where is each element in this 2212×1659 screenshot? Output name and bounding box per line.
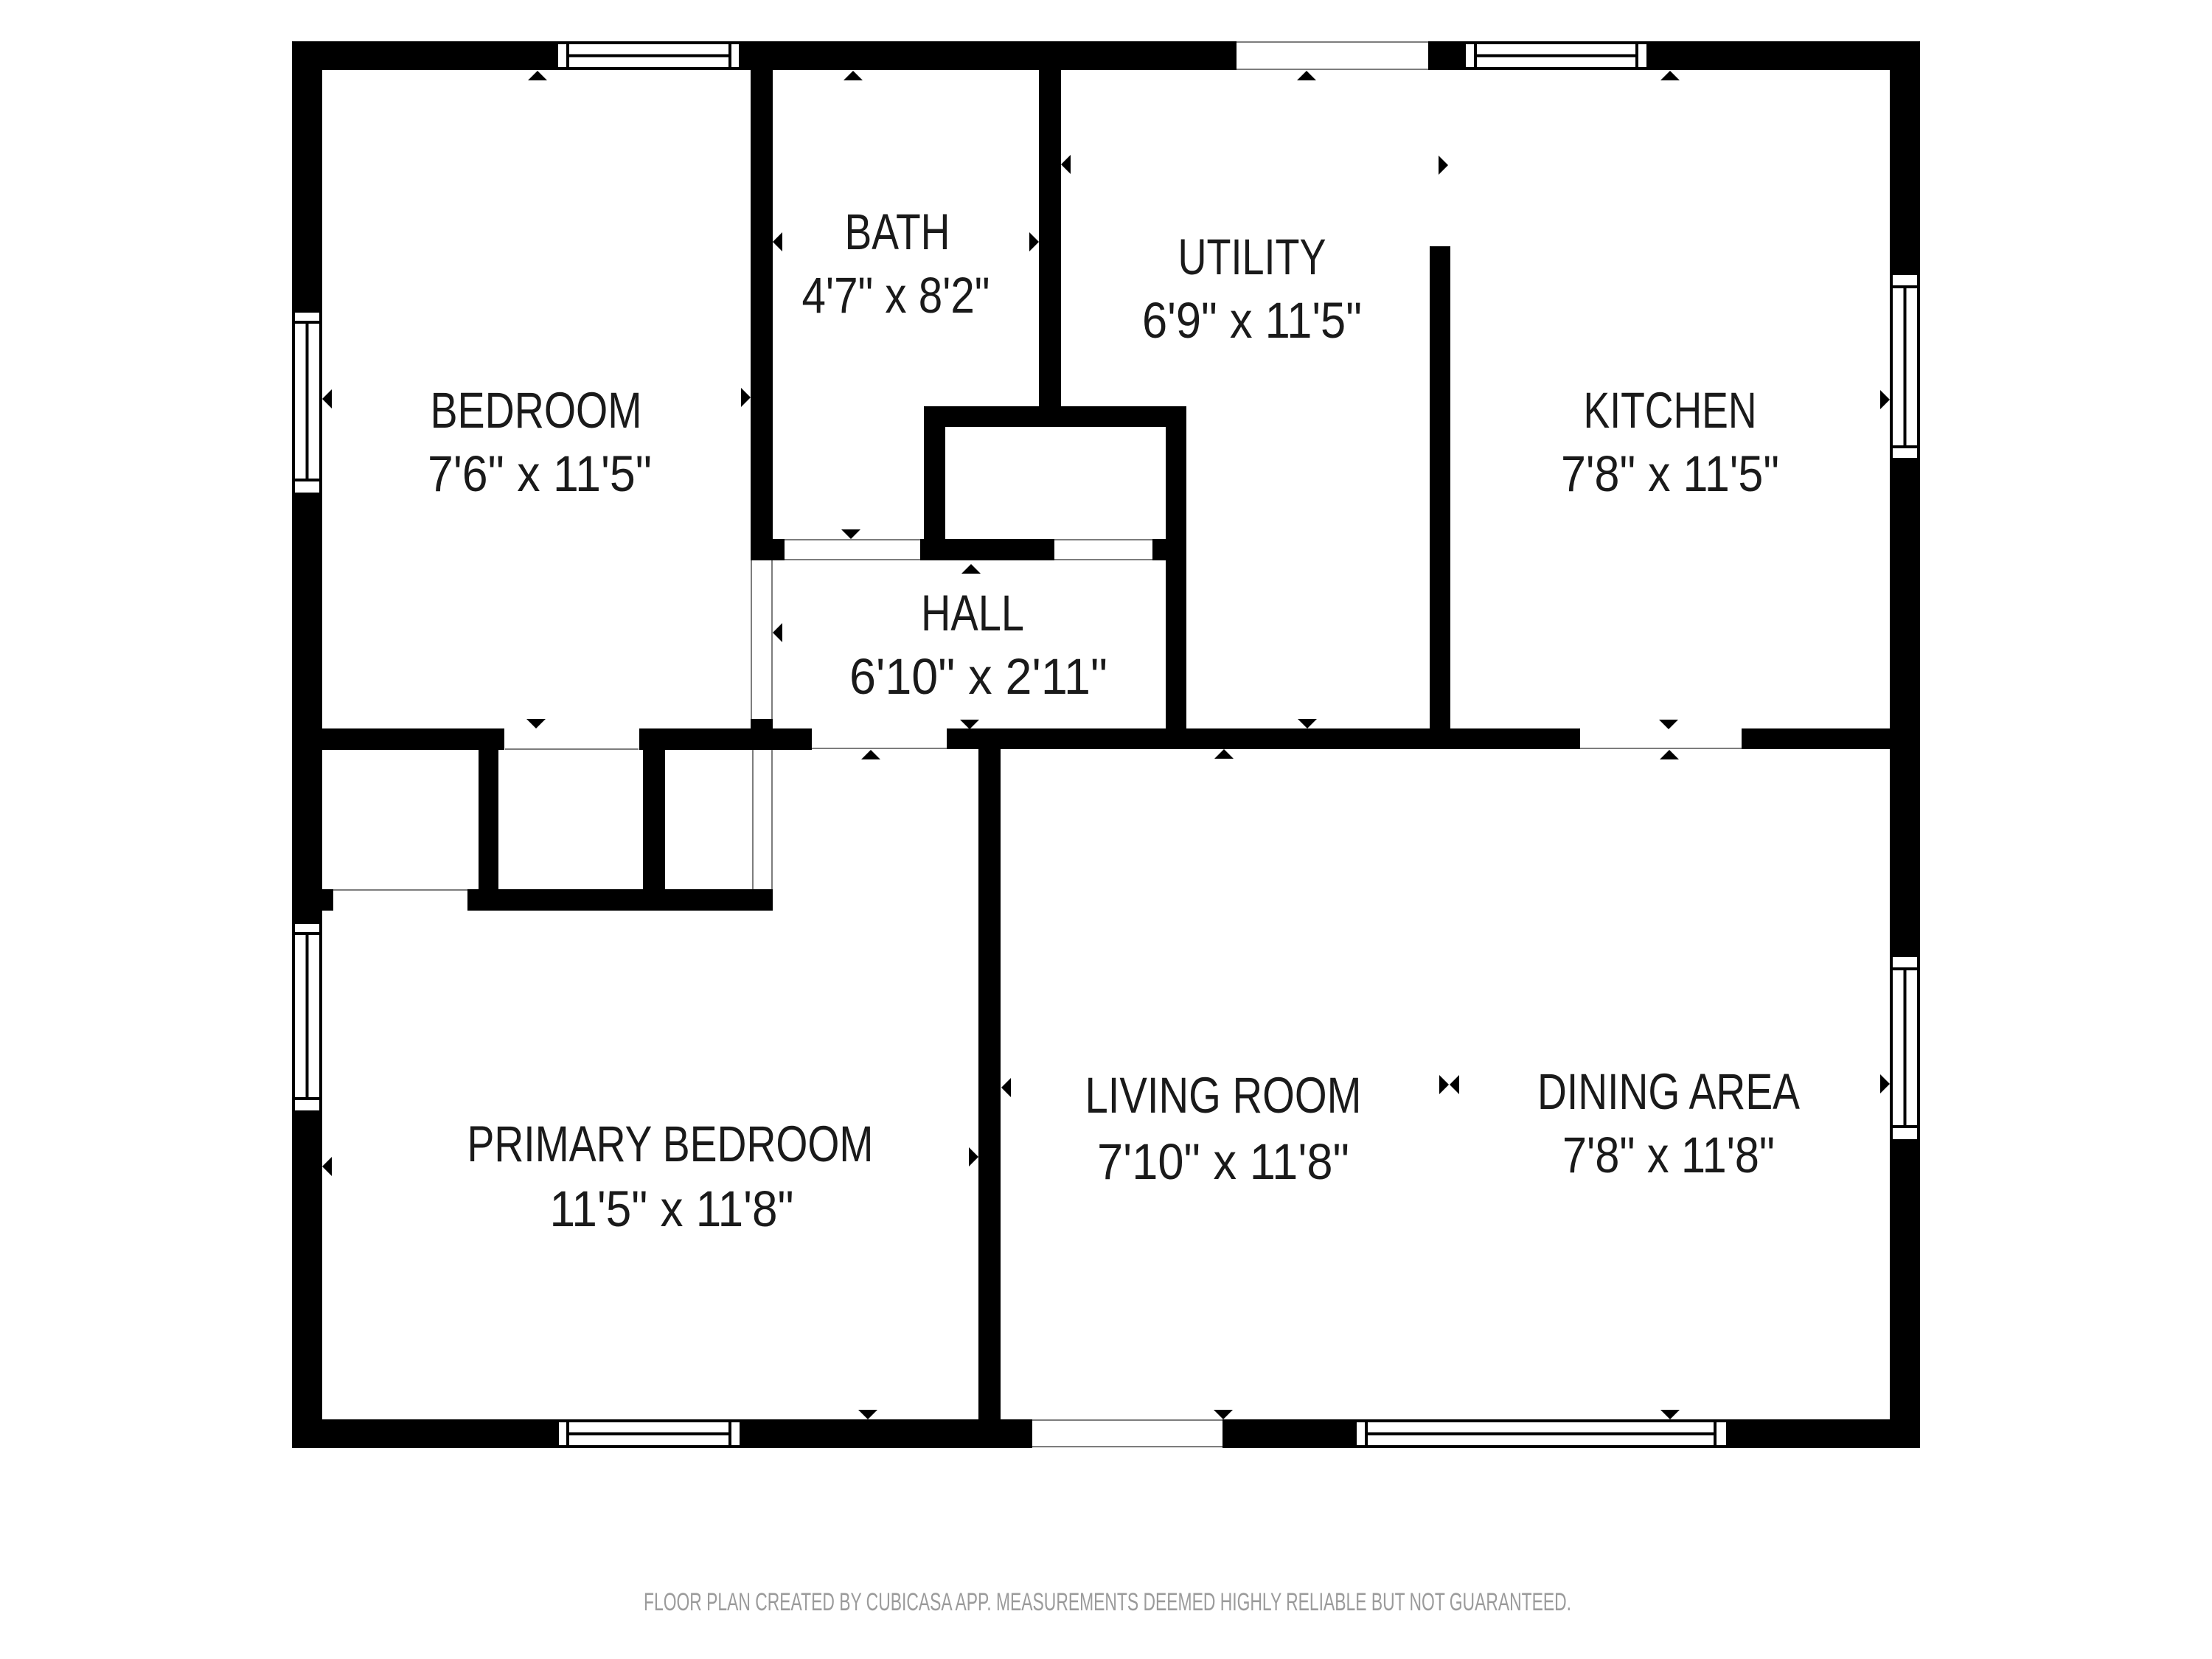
svg-text:7'10" x 11'8": 7'10" x 11'8" — [1097, 1133, 1349, 1190]
svg-text:PRIMARY BEDROOM: PRIMARY BEDROOM — [467, 1116, 874, 1172]
svg-text:BEDROOM: BEDROOM — [431, 382, 642, 439]
svg-text:BATH: BATH — [845, 204, 950, 260]
svg-text:HALL: HALL — [921, 585, 1024, 641]
svg-text:FLOOR PLAN CREATED BY CUBICASA: FLOOR PLAN CREATED BY CUBICASA APP. MEAS… — [644, 1588, 1571, 1616]
svg-text:KITCHEN: KITCHEN — [1584, 382, 1757, 439]
svg-text:6'10" x 2'11": 6'10" x 2'11" — [849, 648, 1107, 705]
svg-text:6'9" x 11'5": 6'9" x 11'5" — [1142, 292, 1362, 349]
svg-text:LIVING ROOM: LIVING ROOM — [1085, 1067, 1362, 1124]
svg-text:UTILITY: UTILITY — [1178, 229, 1326, 285]
svg-text:4'7" x 8'2": 4'7" x 8'2" — [802, 267, 990, 324]
svg-text:7'6" x 11'5": 7'6" x 11'5" — [428, 445, 652, 502]
svg-text:DINING AREA: DINING AREA — [1537, 1063, 1800, 1120]
svg-text:11'5" x 11'8": 11'5" x 11'8" — [550, 1180, 794, 1237]
svg-text:7'8" x 11'5": 7'8" x 11'5" — [1561, 445, 1779, 502]
svg-text:7'8" x 11'8": 7'8" x 11'8" — [1562, 1127, 1775, 1183]
